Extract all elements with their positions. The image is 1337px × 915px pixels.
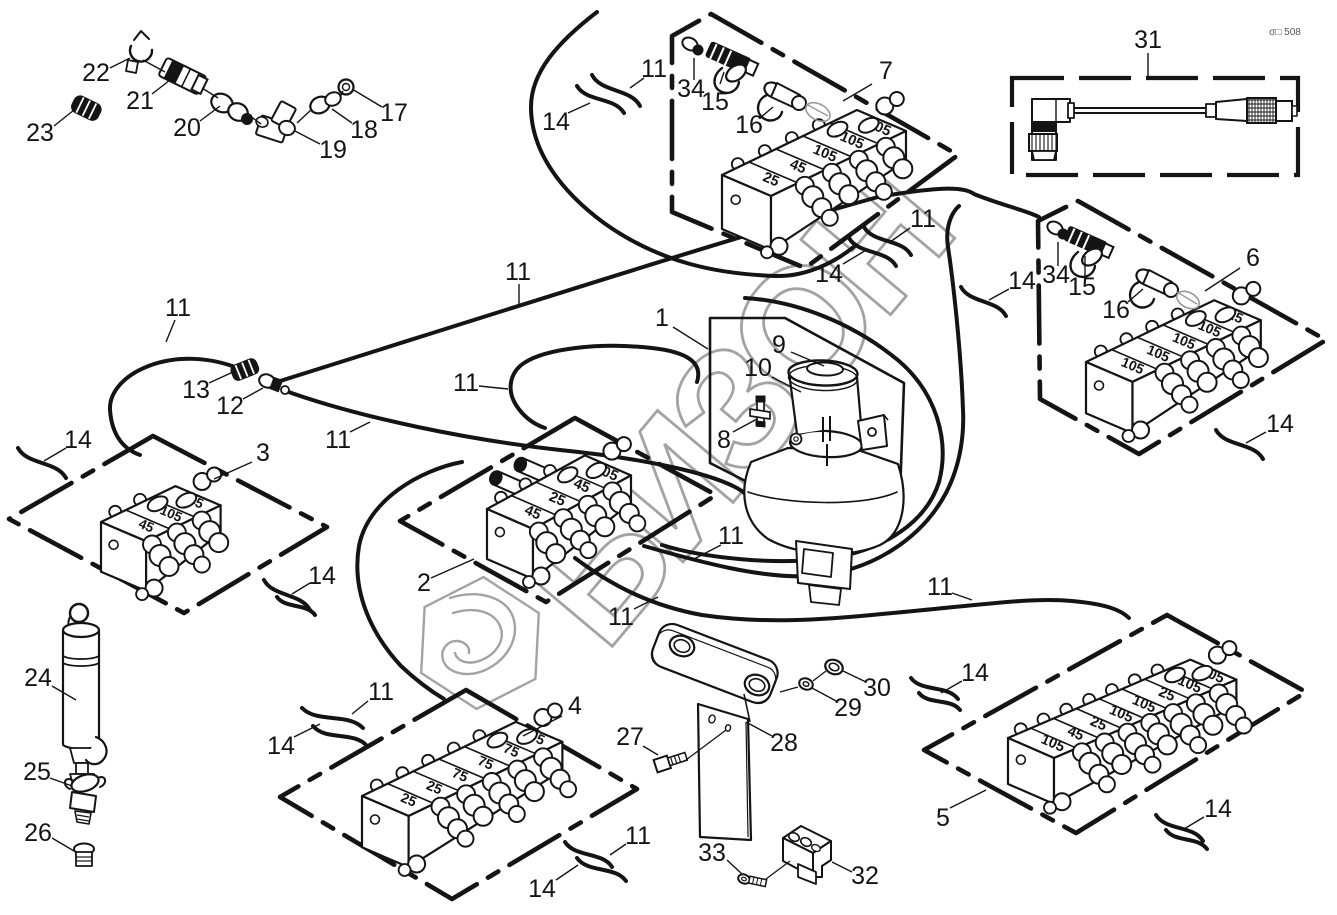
svg-text:10: 10 [744, 354, 772, 382]
svg-text:15: 15 [701, 88, 729, 116]
svg-text:11: 11 [910, 205, 936, 233]
svg-text:34: 34 [1042, 261, 1070, 289]
svg-text:14: 14 [528, 875, 556, 903]
svg-text:28: 28 [770, 729, 798, 757]
svg-text:8: 8 [717, 426, 731, 454]
svg-text:11: 11 [453, 369, 479, 397]
svg-text:26: 26 [24, 819, 52, 847]
svg-text:20: 20 [173, 114, 201, 142]
svg-text:29: 29 [834, 694, 862, 722]
svg-text:14: 14 [1204, 795, 1232, 823]
svg-text:9: 9 [772, 331, 786, 359]
svg-text:33: 33 [698, 839, 726, 867]
svg-text:19: 19 [319, 136, 347, 164]
svg-text:σ□ 508: σ□ 508 [1269, 27, 1301, 38]
svg-text:14: 14 [815, 260, 843, 288]
svg-text:4: 4 [568, 692, 582, 720]
svg-text:11: 11 [641, 55, 667, 83]
svg-text:14: 14 [267, 732, 295, 760]
svg-text:25: 25 [23, 758, 51, 786]
svg-text:18: 18 [350, 116, 378, 144]
svg-text:7: 7 [879, 57, 893, 85]
svg-text:31: 31 [1134, 26, 1162, 54]
svg-text:14: 14 [1008, 267, 1036, 295]
svg-text:11: 11 [718, 522, 744, 550]
svg-text:14: 14 [542, 108, 570, 136]
svg-text:23: 23 [26, 119, 54, 147]
svg-text:3: 3 [256, 439, 270, 467]
svg-text:24: 24 [24, 664, 52, 692]
svg-text:6: 6 [1246, 244, 1260, 272]
svg-text:12: 12 [216, 392, 244, 420]
svg-text:14: 14 [308, 562, 336, 590]
svg-text:11: 11 [165, 294, 191, 322]
svg-text:11: 11 [625, 822, 651, 850]
svg-text:30: 30 [863, 674, 891, 702]
svg-text:11: 11 [608, 603, 634, 631]
svg-text:17: 17 [380, 99, 408, 127]
svg-text:13: 13 [182, 376, 210, 404]
svg-text:11: 11 [368, 678, 394, 706]
svg-text:11: 11 [325, 426, 351, 454]
svg-text:34: 34 [677, 75, 705, 103]
svg-text:15: 15 [1068, 273, 1096, 301]
svg-text:27: 27 [616, 723, 644, 751]
svg-text:16: 16 [1102, 296, 1130, 324]
svg-text:11: 11 [927, 573, 953, 601]
svg-text:1: 1 [655, 304, 669, 332]
svg-text:14: 14 [961, 659, 989, 687]
svg-text:16: 16 [735, 111, 763, 139]
svg-text:11: 11 [505, 258, 531, 286]
svg-text:14: 14 [1266, 410, 1294, 438]
svg-text:14: 14 [64, 426, 92, 454]
svg-text:22: 22 [82, 59, 110, 87]
svg-text:2: 2 [417, 569, 431, 597]
svg-text:21: 21 [126, 87, 154, 115]
svg-text:32: 32 [851, 862, 879, 890]
svg-text:5: 5 [936, 804, 950, 832]
